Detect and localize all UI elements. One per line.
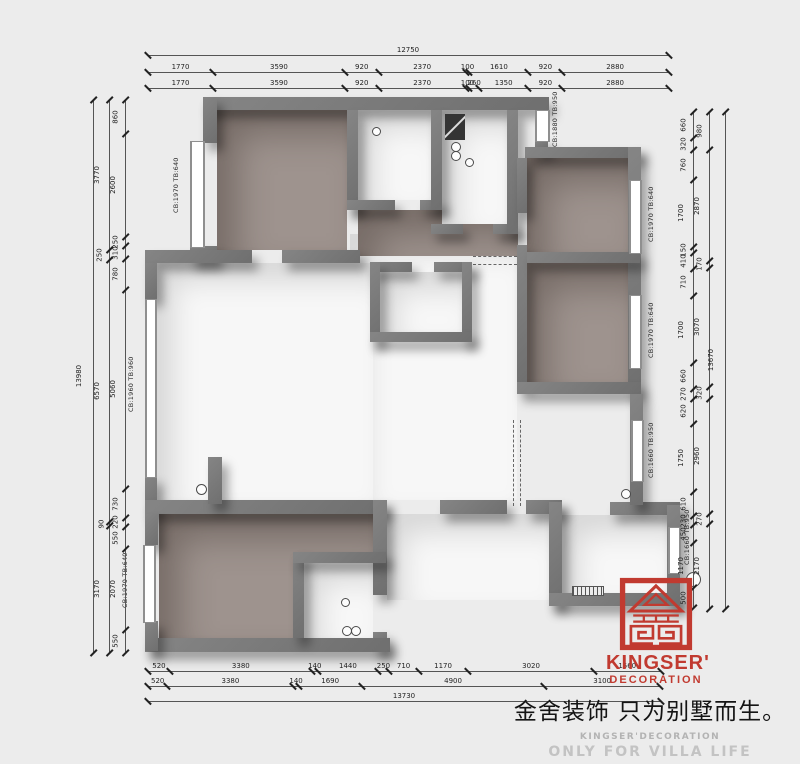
dim-segment: 1770 xyxy=(148,77,213,88)
dim-value: 2600 xyxy=(109,176,117,194)
column-circle xyxy=(196,484,207,495)
dim-value: 780 xyxy=(111,267,119,280)
dim-segment: 660 xyxy=(682,112,693,138)
dim-segment: 2880 xyxy=(562,61,668,72)
dim-value: 710 xyxy=(397,662,410,670)
wall-bath-divider xyxy=(347,110,358,210)
wall-top xyxy=(203,97,549,110)
dim-value: 1690 xyxy=(321,677,339,685)
dim-value: 450 xyxy=(679,527,687,540)
wall-bedroom-spine-lower xyxy=(517,245,527,385)
drain-circle xyxy=(372,127,381,136)
dim-segment: 320 xyxy=(698,387,709,399)
dim-segment: 2870 xyxy=(698,150,709,261)
dim-value: 5060 xyxy=(109,380,117,398)
floor-bedroom-topright xyxy=(527,158,628,252)
dim-segment: 4900 xyxy=(362,675,545,686)
dim-value: 6570 xyxy=(93,382,101,400)
dim-value: 3380 xyxy=(232,662,250,670)
kingser-logo-icon xyxy=(618,576,694,652)
window-living xyxy=(145,299,157,478)
dim-value: 760 xyxy=(679,159,687,172)
dim-segment: 3590 xyxy=(213,77,345,88)
dim-segment: 410 xyxy=(682,253,693,269)
wall-entry-divider xyxy=(549,502,562,605)
dim-segment: 1170 xyxy=(419,660,468,671)
dim-segment: 1440 xyxy=(318,660,378,671)
wall-tag: CB:1660 TB:950 xyxy=(648,422,655,478)
dim-value: 1610 xyxy=(490,63,508,71)
wall-hall-north-r xyxy=(282,250,360,263)
wall-tag: CB:1960 TB:960 xyxy=(128,356,135,412)
wall-left-outer-a xyxy=(145,263,157,299)
dim-value: 1700 xyxy=(677,204,685,222)
wall-tag: CB:1970 TB:640 xyxy=(173,157,180,213)
dim-value: 1770 xyxy=(172,79,190,87)
wall-study-bottom xyxy=(370,332,472,342)
dim-segment: 5060 xyxy=(114,290,125,490)
drain-circle xyxy=(341,598,350,607)
dim-value: 620 xyxy=(679,405,687,418)
dim-value: 2870 xyxy=(693,197,701,215)
dim-segment: 3590 xyxy=(213,61,345,72)
dim-chain-top-row2: 17703590920237010016109202880 xyxy=(148,61,668,73)
wall-bath-south-l xyxy=(347,200,395,210)
dim-segment: 1350 xyxy=(479,77,529,88)
dim-segment: 860 xyxy=(114,100,125,134)
dim-value: 2880 xyxy=(606,79,624,87)
dim-segment: 780 xyxy=(114,259,125,290)
wall-kitchen-south-l xyxy=(431,224,463,234)
wall-bath-f-left xyxy=(293,552,304,638)
dim-segment: 3020 xyxy=(468,660,595,671)
dim-segment: 2370 xyxy=(379,77,466,88)
window-topright-connector xyxy=(535,110,550,142)
dim-segment: 920 xyxy=(345,77,379,88)
dim-segment: 1700 xyxy=(682,296,693,363)
dim-value: 3770 xyxy=(93,166,101,184)
dim-chain-bottom-row2: 5203380140169049003100 xyxy=(148,675,660,687)
dim-segment: 550 xyxy=(114,630,125,652)
dim-value: 860 xyxy=(111,110,119,123)
dim-value: 2370 xyxy=(413,63,431,71)
wall-bedroom-spine-upper xyxy=(517,158,527,213)
pipe-circle xyxy=(451,151,461,161)
wall-hall-north-l xyxy=(145,250,252,263)
wall-stub-up xyxy=(208,457,222,504)
dim-value: 660 xyxy=(679,369,687,382)
dim-segment: 980 xyxy=(698,112,709,150)
dim-value: 320 xyxy=(695,386,703,399)
dim-chain-right-inner: 6603207601700150410710170066027062017506… xyxy=(682,112,694,608)
dim-value: 410 xyxy=(679,254,687,267)
dim-segment: 1690 xyxy=(299,675,362,686)
dim-value: 1750 xyxy=(677,449,685,467)
dim-value: 3170 xyxy=(93,580,101,598)
wall-bedroom-c-bottom xyxy=(517,382,641,394)
kitchen-flue xyxy=(445,114,465,140)
dim-segment: 3770 xyxy=(98,100,109,250)
window-bedroom-c xyxy=(629,295,642,369)
drain-circle xyxy=(621,489,631,499)
dim-value: 920 xyxy=(355,79,368,87)
dashed-opening-line xyxy=(520,420,521,506)
dim-segment: 2600 xyxy=(114,134,125,237)
wall-bedroom-e-right-a xyxy=(373,500,387,595)
dim-segment: 250 xyxy=(98,250,109,260)
dim-segment: 2170 xyxy=(698,524,709,608)
dim-value: 1170 xyxy=(677,557,685,575)
dim-segment: 710 xyxy=(389,660,419,671)
dim-segment: 6570 xyxy=(98,260,109,522)
dim-segment: 1610 xyxy=(469,61,528,72)
dim-segment: 1770 xyxy=(148,61,213,72)
dim-value: 4900 xyxy=(444,677,462,685)
wall-study-right xyxy=(462,262,472,342)
dim-segment: 1750 xyxy=(682,424,693,493)
footer-branding: 金舍装饰 只为别墅而生。 KINGSER'DECORATION ONLY FOR… xyxy=(510,692,790,760)
logo-wordmark-line2: DECORATION xyxy=(606,674,706,686)
wall-bedroom-e-bottom xyxy=(145,638,390,652)
wall-entry-north-l xyxy=(440,500,507,514)
dim-value: 1440 xyxy=(339,662,357,670)
dim-value: 520 xyxy=(152,662,165,670)
dim-segment: 920 xyxy=(528,61,562,72)
dim-value: 13730 xyxy=(393,692,415,700)
floorplan-canvas: CB:1970 TB:640 CB:1960 TB:960 CB:1970 TB… xyxy=(0,0,800,764)
dim-segment: 13670 xyxy=(714,112,725,608)
floor-living xyxy=(157,263,373,500)
dim-chain-top-row3: 17703590920237010026013509202880 xyxy=(148,77,668,89)
wall-bedroom-b-top xyxy=(525,147,640,158)
dim-segment: 760 xyxy=(682,150,693,180)
dashed-opening-line xyxy=(473,256,517,257)
dim-chain-top-total: 12750 xyxy=(148,44,668,56)
wall-topleft-stub xyxy=(203,97,217,143)
wall-tag: CB:1970 TB:640 xyxy=(648,302,655,358)
floor-entry xyxy=(387,514,549,600)
dim-segment: 710 xyxy=(682,269,693,297)
floor-bedroom-midright xyxy=(527,263,628,382)
dim-value: 920 xyxy=(539,79,552,87)
slogan-cn: 金舍装饰 只为别墅而生。 xyxy=(510,692,790,726)
dim-value: 13980 xyxy=(75,365,83,387)
dim-segment: 660 xyxy=(682,363,693,389)
dim-value: 1700 xyxy=(677,321,685,339)
logo-wordmark-line1: KINGSER' xyxy=(606,652,706,675)
wall-tag: CB:1880 TB:950 xyxy=(552,91,559,147)
dashed-opening-line xyxy=(473,264,517,265)
dim-segment: 2880 xyxy=(562,77,668,88)
dim-value: 550 xyxy=(111,531,119,544)
dim-value: 12750 xyxy=(397,46,419,54)
dim-value: 730 xyxy=(111,497,119,510)
dim-segment: 270 xyxy=(682,389,693,400)
dim-value: 320 xyxy=(679,137,687,150)
wall-living-south xyxy=(145,500,385,514)
dim-value: 3380 xyxy=(221,677,239,685)
dim-segment: 220 xyxy=(114,518,125,527)
dim-value: 2880 xyxy=(606,63,624,71)
tagline-en: ONLY FOR VILLA LIFE xyxy=(510,744,790,760)
dim-value: 2960 xyxy=(693,447,701,465)
dim-segment: 170 xyxy=(698,261,709,268)
dim-value: 1350 xyxy=(495,79,513,87)
dim-value: 3020 xyxy=(522,662,540,670)
dim-value: 610 xyxy=(679,497,687,510)
pipe-circle xyxy=(351,626,361,636)
dim-chain-right-outer: 13670 xyxy=(714,112,726,608)
dim-value: 1170 xyxy=(434,662,452,670)
drain-circle xyxy=(465,158,474,167)
dim-segment: 3380 xyxy=(170,660,312,671)
dim-value: 980 xyxy=(695,124,703,137)
dim-chain-bottom-row1: 52033801401440250710117030201560 xyxy=(148,660,660,672)
dim-segment: 450 xyxy=(682,525,693,543)
dim-segment: 1700 xyxy=(682,180,693,247)
dim-value: 920 xyxy=(539,63,552,71)
dim-segment: 3170 xyxy=(98,526,109,652)
dim-segment: 230 xyxy=(682,516,693,525)
dim-value: 310 xyxy=(111,246,119,259)
floor-bath-bottom xyxy=(304,563,373,638)
dim-segment: 13980 xyxy=(82,100,93,652)
window-bedroom-b xyxy=(629,180,642,254)
dim-value: 3590 xyxy=(270,63,288,71)
dim-chain-left-inner: 860260025031078050607302205502070550 xyxy=(114,100,126,652)
wall-bc-divider xyxy=(527,252,640,263)
dim-value: 710 xyxy=(679,276,687,289)
kingser-logo xyxy=(618,576,694,652)
dim-segment: 12750 xyxy=(148,44,668,55)
dim-value: 3070 xyxy=(693,318,701,336)
dashed-opening-line xyxy=(513,420,514,506)
window-right-mid xyxy=(631,420,644,482)
dim-segment: 3380 xyxy=(167,675,293,686)
radiator-hatch xyxy=(572,586,604,596)
wall-kitchen-divider xyxy=(431,110,442,210)
floor-study xyxy=(380,272,462,332)
dim-segment: 270 xyxy=(698,514,709,524)
dim-segment: 320 xyxy=(682,138,693,151)
dim-value: 3590 xyxy=(270,79,288,87)
dim-segment: 920 xyxy=(345,61,379,72)
dim-value: 920 xyxy=(355,63,368,71)
dim-segment: 620 xyxy=(682,399,693,423)
wall-left-outer-c xyxy=(145,514,158,545)
dim-value: 2070 xyxy=(109,580,117,598)
dim-segment: 550 xyxy=(114,527,125,549)
wall-left-outer-d xyxy=(145,621,158,651)
dim-segment: 2070 xyxy=(114,549,125,631)
floor-bath-top xyxy=(358,110,431,200)
dim-value: 1770 xyxy=(172,63,190,71)
wall-study-left xyxy=(370,262,380,342)
window-bedroom-bottomleft xyxy=(143,545,156,623)
dim-value: 2170 xyxy=(693,557,701,575)
dim-value: 550 xyxy=(111,634,119,647)
dim-value: 2370 xyxy=(413,79,431,87)
dim-segment: 2960 xyxy=(698,399,709,514)
wall-tag: CB:1970 TB:640 xyxy=(648,186,655,242)
floor-bedroom-topleft xyxy=(217,110,347,250)
dim-value: 13670 xyxy=(707,349,715,371)
dim-segment: 730 xyxy=(114,489,125,518)
brand-en: KINGSER'DECORATION xyxy=(510,732,790,742)
dim-segment: 610 xyxy=(682,492,693,516)
dim-segment: 2370 xyxy=(379,61,466,72)
dim-value: 660 xyxy=(679,118,687,131)
dim-segment: 310 xyxy=(114,246,125,258)
wall-bath-f-top xyxy=(293,552,386,563)
window-bedroom-topleft xyxy=(190,141,205,248)
dim-segment: 920 xyxy=(528,77,562,88)
